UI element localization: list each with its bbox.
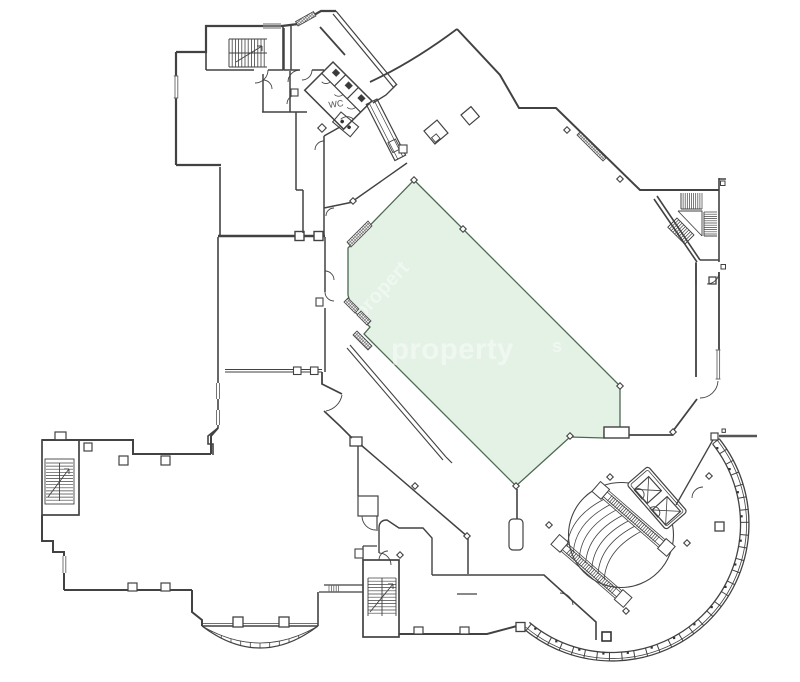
svg-text:property: property — [391, 333, 514, 366]
svg-text:s: s — [552, 336, 562, 356]
svg-text:WC: WC — [328, 98, 345, 110]
